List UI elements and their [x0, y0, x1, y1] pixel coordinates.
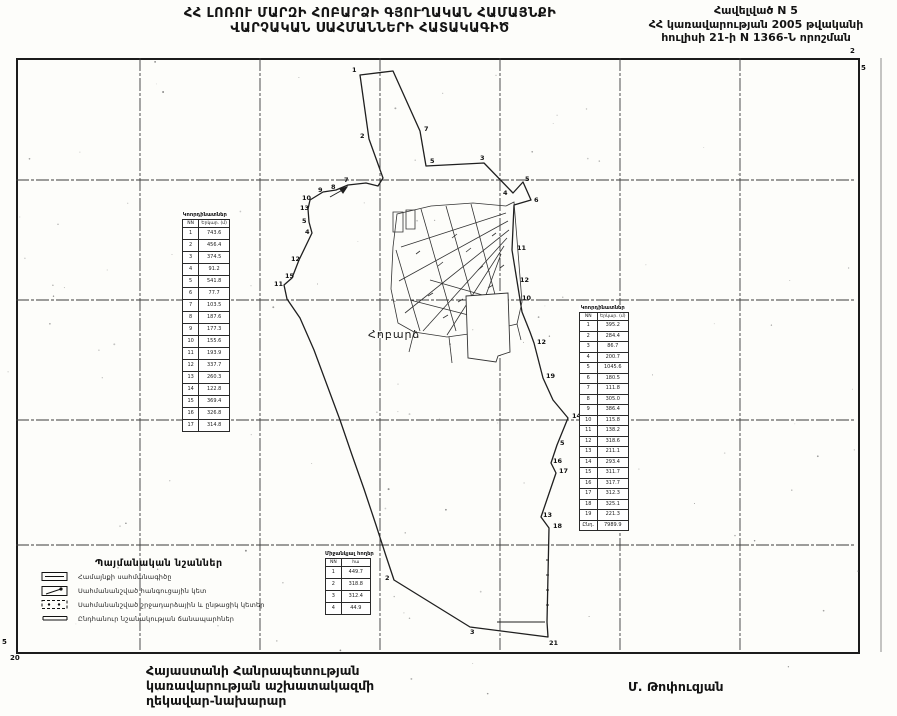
table-cell: 4 [326, 603, 342, 615]
table-cell: 395.2 [597, 321, 628, 332]
table-row: Ընդ.7989.9 [580, 520, 629, 531]
table-row: 16326.8 [183, 408, 230, 420]
table-cell: 7 [183, 300, 199, 312]
table-cell: 2 [326, 579, 342, 591]
boundary-point-label: 6 [534, 197, 539, 203]
boundary-point-label: 4 [305, 229, 310, 235]
table-cell: 16 [580, 478, 598, 489]
boundary-point-label: 2 [360, 133, 365, 139]
table-cell: 15 [183, 396, 199, 408]
legend-item-label: Սահմանանշված հանգուցային կետ [78, 587, 207, 595]
table-cell: 1045.6 [597, 363, 628, 374]
boundary-point-label: 11 [274, 281, 283, 287]
boundary-point-label: 9 [318, 187, 323, 193]
table-cell: 3 [183, 252, 199, 264]
table-cell: 13 [580, 447, 598, 458]
table-row: 444.9 [326, 603, 371, 615]
table-cell: 311.7 [597, 468, 628, 479]
table-row: 10115.8 [580, 415, 629, 426]
table-cell: 17 [183, 420, 199, 432]
column-header: Երկար. (մ) [199, 220, 230, 228]
table-row: 8305.0 [580, 394, 629, 405]
table-row: 491.2 [183, 264, 230, 276]
table-cell: 3 [326, 591, 342, 603]
table-cell: 211.1 [597, 447, 628, 458]
table-row: 677.7 [183, 288, 230, 300]
table-cell: 326.8 [199, 408, 230, 420]
boundary-point-label: 15 [285, 273, 294, 279]
table-cell: 8 [580, 394, 598, 405]
table-row: 2318.8 [326, 579, 371, 591]
table-cell: 8 [183, 312, 199, 324]
table-cell: 314.8 [199, 420, 230, 432]
table-row: 19221.3 [580, 510, 629, 521]
table-cell: 115.8 [597, 415, 628, 426]
table-row: 10155.6 [183, 336, 230, 348]
corner-label: 2 [850, 48, 855, 55]
table-cell: 180.5 [597, 373, 628, 384]
table-cell: 541.8 [199, 276, 230, 288]
table-row: 11138.2 [580, 426, 629, 437]
left-coordinates-table: Կոորդինատներ NNԵրկար. (մ)1743.62456.4337… [182, 212, 230, 432]
table-cell: 11 [580, 426, 598, 437]
boundary-point-label: 12 [291, 256, 300, 262]
table-cell: 9 [580, 405, 598, 416]
table-row: 51045.6 [580, 363, 629, 374]
table-cell: 374.5 [199, 252, 230, 264]
legend-item: Սահմանանշված հանգուցային կետ [40, 584, 320, 597]
table-cell: 369.4 [199, 396, 230, 408]
table-row: 1395.2 [580, 321, 629, 332]
table-cell: 155.6 [199, 336, 230, 348]
legend-item: Ընդհանուր նշանակության ճանապարհներ [40, 612, 320, 625]
table-cell: 14 [183, 384, 199, 396]
table-row: 12337.7 [183, 360, 230, 372]
right-table-title: Կոորդինատներ [579, 305, 627, 311]
page-title-line2: ՎԱՐՉԱԿԱՆ ՍԱՀՄԱՆՆԵՐԻ ՀԱՏԱԿԱԳԻԾ [90, 21, 650, 36]
table-cell: 305.0 [597, 394, 628, 405]
table-row: 16317.7 [580, 478, 629, 489]
table-cell: 12 [580, 436, 598, 447]
column-header: NN [580, 313, 598, 321]
left-table-grid: NNԵրկար. (մ)1743.62456.43374.5491.25541.… [182, 219, 230, 432]
table-cell: 5 [183, 276, 199, 288]
table-cell: 10 [580, 415, 598, 426]
table-cell: 221.3 [597, 510, 628, 521]
table-cell: 193.9 [199, 348, 230, 360]
boundary-line-icon [40, 571, 70, 582]
table-cell: 122.8 [199, 384, 230, 396]
boundary-point-label: 5 [525, 176, 530, 182]
table-cell: 1 [580, 321, 598, 332]
signatory-line2: կառավարության աշխատակազմի [146, 678, 374, 693]
annex-note: Հավելված N 5 ՀՀ կառավարության 2005 թվակա… [620, 4, 892, 45]
table-row: 12318.6 [580, 436, 629, 447]
boundary-point-label: 21 [549, 640, 558, 646]
table-cell: 7989.9 [597, 520, 628, 531]
boundary-point-label: 1 [352, 67, 357, 73]
table-cell: 6 [183, 288, 199, 300]
column-header: հա [341, 559, 370, 567]
table-cell: 103.5 [199, 300, 230, 312]
road-icon [40, 614, 70, 623]
right-coordinates-table: Կոորդինատներ NNԵրկար. (մ)1395.22284.4386… [579, 305, 629, 531]
boundary-point-label: 7 [344, 177, 349, 183]
table-row: 3374.5 [183, 252, 230, 264]
table-cell: 1 [326, 567, 342, 579]
table-cell: Ընդ. [580, 520, 598, 531]
table-cell: 13 [183, 372, 199, 384]
boundary-point-label: 5 [560, 440, 565, 446]
table-cell: 1 [183, 228, 199, 240]
table-row: 17312.3 [580, 489, 629, 500]
boundary-point-label: 4 [503, 190, 508, 196]
boundary-point-label: 7 [424, 126, 429, 132]
node-point-icon [40, 585, 70, 597]
column-header: Երկար. (մ) [597, 313, 628, 321]
legend-item-label: Սահմանանշված շրջադարձային և ընթացիկ կետե… [78, 601, 265, 609]
approval-signatory-title: Հայաստանի Հանրապետության կառավարության ա… [146, 663, 374, 708]
corner-label: 5 [2, 639, 7, 646]
table-cell: 44.9 [341, 603, 370, 615]
table-row: 7103.5 [183, 300, 230, 312]
signatory-line1: Հայաստանի Հանրապետության [146, 663, 374, 678]
boundary-point-label: 3 [480, 155, 485, 161]
table-row: 15311.7 [580, 468, 629, 479]
table-row: 9177.3 [183, 324, 230, 336]
table-row: 13211.1 [580, 447, 629, 458]
annex-line3: հուլիսի 21-ի N 1366-Ն որոշման [620, 31, 892, 45]
table-cell: 177.3 [199, 324, 230, 336]
table-cell: 318.6 [597, 436, 628, 447]
table-cell: 337.7 [199, 360, 230, 372]
boundary-point-label: 12 [520, 277, 529, 283]
table-cell: 312.3 [597, 489, 628, 500]
table-cell: 12 [183, 360, 199, 372]
table-cell: 260.3 [199, 372, 230, 384]
corner-label: 20 [10, 655, 20, 662]
table-cell: 17 [580, 489, 598, 500]
table-cell: 16 [183, 408, 199, 420]
legend-item-label: Ընդհանուր նշանակության ճանապարհներ [78, 615, 234, 623]
table-row: 2284.4 [580, 331, 629, 342]
annex-line1: Հավելված N 5 [620, 4, 892, 18]
table-cell: 77.7 [199, 288, 230, 300]
table-cell: 284.4 [597, 331, 628, 342]
table-cell: 325.1 [597, 499, 628, 510]
table-cell: 91.2 [199, 264, 230, 276]
left-table-title: Կոորդինատներ [182, 212, 228, 218]
legend-item: Սահմանանշված շրջադարձային և ընթացիկ կետե… [40, 598, 320, 611]
table-cell: 293.4 [597, 457, 628, 468]
table-row: 1743.6 [183, 228, 230, 240]
table-row: 3312.4 [326, 591, 371, 603]
boundary-point-label: 11 [517, 245, 526, 251]
legend-item-label: Համայնքի սահմանագիծը [78, 573, 172, 581]
bottom-table-grid: NNհա1449.72318.83312.4444.9 [325, 558, 371, 615]
table-cell: 2 [183, 240, 199, 252]
table-cell: 5 [580, 363, 598, 374]
table-row: 13260.3 [183, 372, 230, 384]
boundary-point-label: 12 [537, 339, 546, 345]
boundary-point-label: 16 [553, 458, 562, 464]
legend-items: Համայնքի սահմանագիծըՍահմանանշված հանգուց… [40, 570, 320, 625]
legend-title: Պայմանական նշաններ [95, 558, 320, 569]
table-cell: 317.7 [597, 478, 628, 489]
table-row: 11193.9 [183, 348, 230, 360]
table-cell: 4 [183, 264, 199, 276]
table-row: 5541.8 [183, 276, 230, 288]
table-cell: 6 [580, 373, 598, 384]
right-table-grid: NNԵրկար. (մ)1395.22284.4386.74200.751045… [579, 312, 629, 531]
table-row: 14122.8 [183, 384, 230, 396]
boundary-point-label: 5 [302, 218, 307, 224]
legend-item: Համայնքի սահմանագիծը [40, 570, 320, 583]
table-cell: 187.6 [199, 312, 230, 324]
page-title: ՀՀ ԼՈՌՈՒ ՄԱՐԶԻ ՀՈԲԱՐՁԻ ԳՅՈՒՂԱԿԱՆ ՀԱՄԱՅՆՔ… [90, 6, 650, 36]
table-cell: 386.4 [597, 405, 628, 416]
boundary-point-label: 17 [559, 468, 568, 474]
table-cell: 9 [183, 324, 199, 336]
table-cell: 18 [580, 499, 598, 510]
table-cell: 2 [580, 331, 598, 342]
bottom-table-title: Միջանկյալ հողեր [325, 551, 369, 557]
table-cell: 200.7 [597, 352, 628, 363]
column-header: NN [183, 220, 199, 228]
boundary-point-label: 13 [300, 205, 309, 211]
table-cell: 11 [183, 348, 199, 360]
table-cell: 15 [580, 468, 598, 479]
table-cell: 14 [580, 457, 598, 468]
table-row: 8187.6 [183, 312, 230, 324]
settlement-label: Հոբարձ [368, 328, 420, 341]
table-row: 9386.4 [580, 405, 629, 416]
table-row: 1449.7 [326, 567, 371, 579]
table-cell: 111.8 [597, 384, 628, 395]
page-title-line1: ՀՀ ԼՈՌՈՒ ՄԱՐԶԻ ՀՈԲԱՐՁԻ ԳՅՈՒՂԱԿԱՆ ՀԱՄԱՅՆՔ… [90, 6, 650, 21]
table-cell: 4 [580, 352, 598, 363]
table-row: 17314.8 [183, 420, 230, 432]
table-cell: 456.4 [199, 240, 230, 252]
bottom-lands-table: Միջանկյալ հողեր NNհա1449.72318.83312.444… [325, 551, 371, 615]
boundary-point-label: 5 [430, 158, 435, 164]
signatory-line3: ղեկավար-նախարար [146, 693, 374, 708]
table-cell: 3 [580, 342, 598, 353]
table-row: 4200.7 [580, 352, 629, 363]
table-cell: 312.4 [341, 591, 370, 603]
boundary-point-label: 8 [331, 184, 336, 190]
boundary-point-label: 2 [385, 575, 390, 581]
column-header: NN [326, 559, 342, 567]
boundary-point-label: 13 [543, 512, 552, 518]
boundary-point-label: 10 [302, 195, 311, 201]
table-row: 6180.5 [580, 373, 629, 384]
table-cell: 10 [183, 336, 199, 348]
table-cell: 449.7 [341, 567, 370, 579]
signature-name: Մ. Թոփուզյան [628, 679, 724, 694]
boundary-point-label: 19 [546, 373, 555, 379]
table-row: 15369.4 [183, 396, 230, 408]
table-cell: 86.7 [597, 342, 628, 353]
scanned-map-page: { "header": { "title_line1": "ՀՀ ԼՈՌՈՒ Մ… [0, 0, 897, 716]
table-row: 18325.1 [580, 499, 629, 510]
annex-line2: ՀՀ կառավարության 2005 թվականի [620, 18, 892, 32]
table-row: 14293.4 [580, 457, 629, 468]
boundary-point-label: 18 [553, 523, 562, 529]
map-legend: Պայմանական նշաններ Համայնքի սահմանագիծըՍ… [40, 558, 320, 625]
table-cell: 7 [580, 384, 598, 395]
turning-point-icon [40, 599, 70, 610]
corner-label: 5 [861, 65, 866, 72]
table-row: 7111.8 [580, 384, 629, 395]
table-cell: 743.6 [199, 228, 230, 240]
table-cell: 138.2 [597, 426, 628, 437]
boundary-point-label: 10 [522, 295, 531, 301]
table-cell: 318.8 [341, 579, 370, 591]
boundary-point-label: 3 [470, 629, 475, 635]
table-cell: 19 [580, 510, 598, 521]
table-row: 386.7 [580, 342, 629, 353]
table-row: 2456.4 [183, 240, 230, 252]
